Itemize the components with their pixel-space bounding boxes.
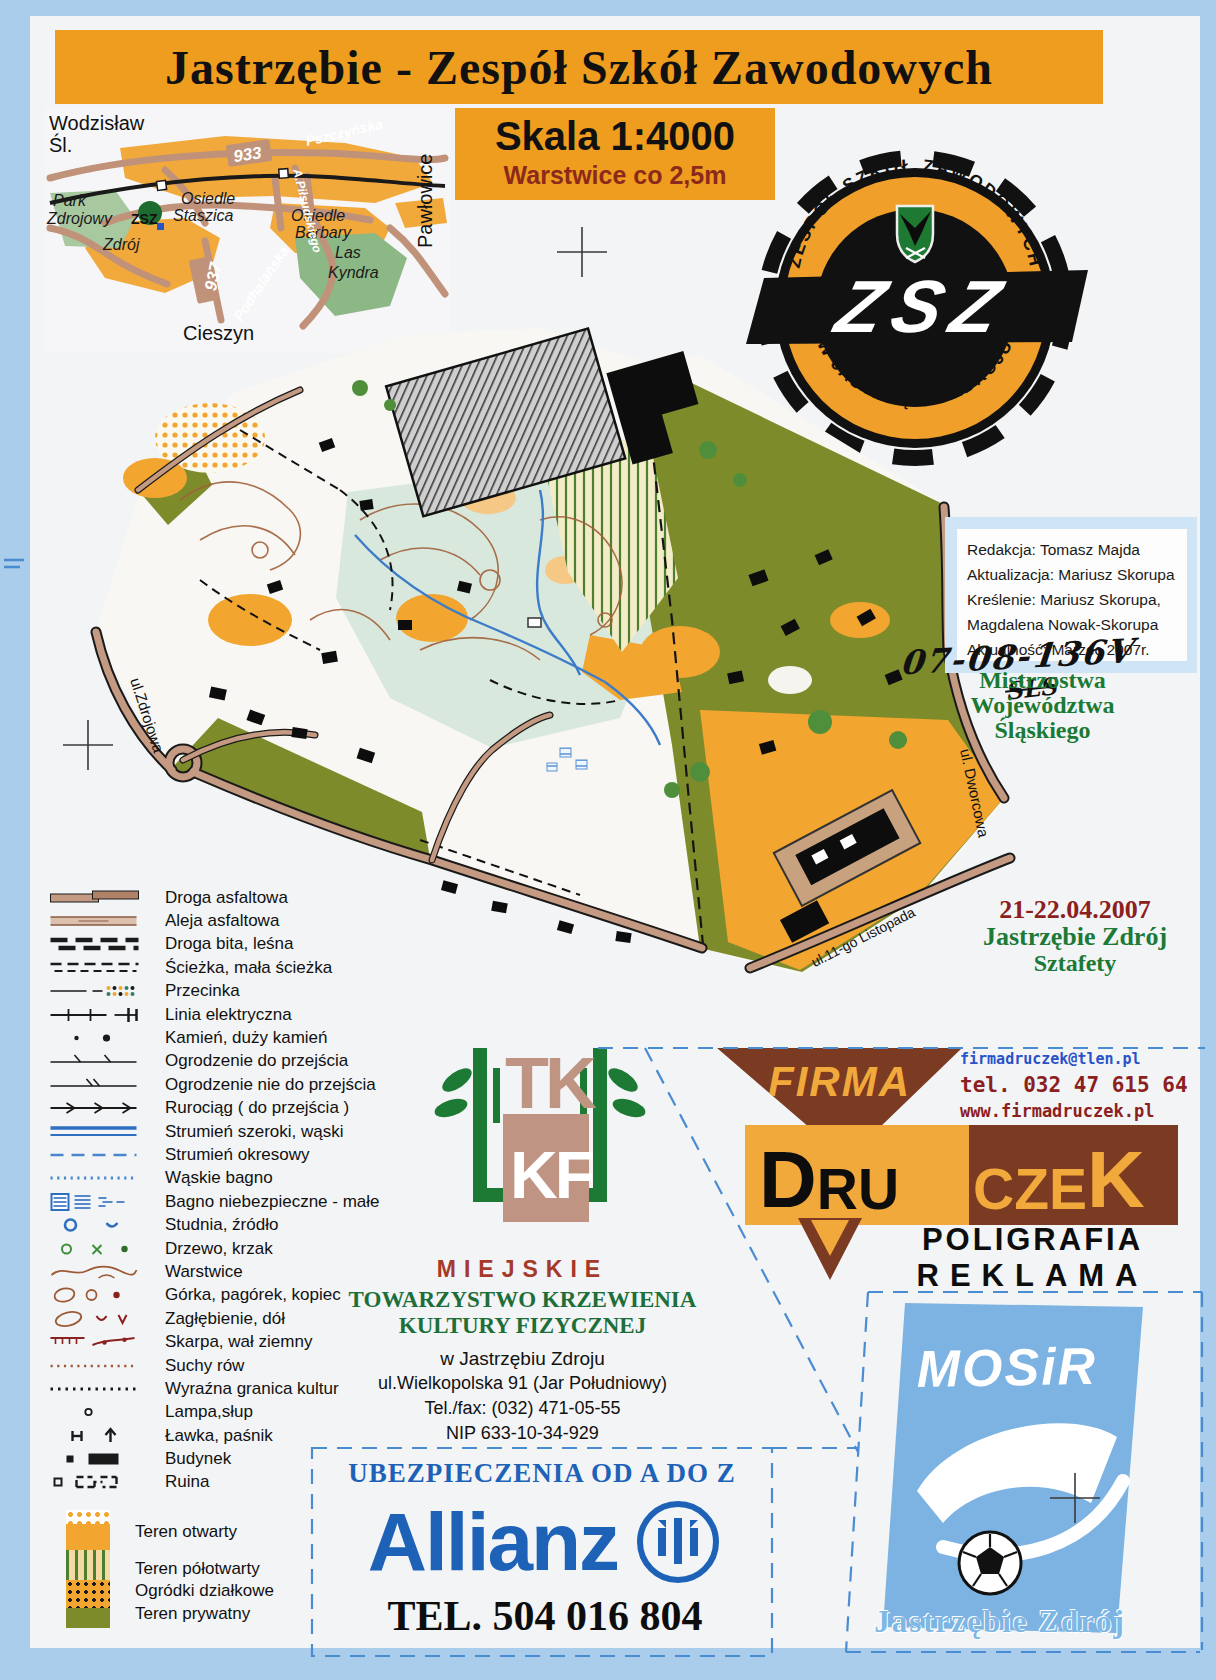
ogrodzenie-do-icon — [46, 1051, 151, 1071]
locator-label-zsz: ZSZ — [131, 211, 158, 227]
mosir-name: MOSiR — [916, 1337, 1097, 1398]
przecinka-icon — [46, 981, 151, 1001]
page-title: Jastrzębie - Zespół Szkół Zawodowych — [165, 40, 993, 95]
allianz-phone: TEL. 504 016 804 — [330, 1592, 760, 1640]
locator-label-barbary-2: Barbary — [295, 224, 352, 241]
locator-label-933: 933 — [232, 143, 263, 166]
legend-item-strumien: Strumień szeroki, wąski — [46, 1120, 396, 1143]
legend-item-kamien: Kamień, duży kamień — [46, 1026, 396, 1049]
legend-label: Linia elektryczna — [165, 1005, 292, 1025]
legend-item-sciezka: Ścieżka, mała ścieżka — [46, 956, 396, 979]
locator-label-zdroj: Zdrój — [102, 236, 140, 253]
scale-box: Skala 1:4000 Warstwice co 2,5m — [455, 108, 775, 200]
suchy-row-icon — [46, 1356, 151, 1376]
legend-label: Warstwice — [165, 1262, 243, 1282]
granica-kultur-icon — [46, 1379, 151, 1399]
legend-label: Wąskie bagno — [165, 1168, 273, 1188]
linia-elektryczna-icon — [46, 1005, 151, 1025]
legend-item-droga-bita: Droga bita, leśna — [46, 933, 396, 956]
legend-item-waskie-bagno: Wąskie bagno — [46, 1167, 396, 1190]
druczek-d: D — [759, 1143, 817, 1217]
sciezka-icon — [46, 958, 151, 978]
map-clearing — [768, 666, 812, 694]
aleja-asfaltowa-icon — [46, 911, 151, 931]
swatch-halfopen — [66, 1550, 110, 1580]
druczek-website: www.firmadruczek.pl — [960, 1101, 1210, 1121]
locator-map: 933 937 Wodzisław Śl. Cieszyn Park Zdroj… — [45, 108, 450, 353]
tkkf-street: ul.Wielkopolska 91 (Jar Południowy) — [330, 1372, 715, 1395]
legend-label: Strumień okresowy — [165, 1145, 310, 1165]
druczek-triangle-inner-icon — [811, 1220, 849, 1256]
locator-label-las-2: Kyndra — [328, 264, 379, 281]
legend-label: Droga asfaltowa — [165, 888, 288, 908]
allianz-logo-icon — [634, 1498, 722, 1586]
legend-item-przecinka: Przecinka — [46, 980, 396, 1003]
legend-item-ogrodzenie-nie: Ogrodzenie nie do przejścia — [46, 1073, 396, 1096]
strumien-icon — [46, 1122, 151, 1142]
zaglebienie-icon — [46, 1309, 151, 1329]
budynek-icon — [46, 1449, 151, 1469]
legend-area-swatches — [66, 1510, 110, 1628]
druczek-ru: RU — [817, 1161, 899, 1217]
legend-item-ogrodzenie-do: Ogrodzenie do przejścia — [46, 1050, 396, 1073]
legend-label: Wyraźna granica kultur — [165, 1379, 339, 1399]
championship-title: Mistrzostwa Województwa Śląskiego — [935, 668, 1150, 743]
scanned-map-poster: Jastrzębie - Zespół Szkół Zawodowych — [0, 0, 1216, 1680]
event-place: Jastrzębie Zdrój — [950, 923, 1200, 950]
legend-label: Górka, pagórek, kopiec — [165, 1285, 341, 1305]
tkkf-tk: TK — [505, 1043, 597, 1123]
legend-item-aleja-asfaltowa: Aleja asfaltowa — [46, 909, 396, 932]
swatch-private — [66, 1608, 110, 1628]
locator-zsz-marker — [157, 223, 164, 230]
legend-label: Ogrodzenie nie do przejścia — [165, 1075, 376, 1095]
map-building-open — [528, 618, 541, 627]
ruina-icon — [46, 1472, 151, 1492]
druczek-wordmark-right: CZEK — [969, 1125, 1178, 1225]
credits-line: Redakcja: Tomasz Majda — [967, 537, 1181, 562]
locator-label-staszica-1: Osiedle — [181, 190, 235, 207]
legend-label: Drzewo, krzak — [165, 1239, 273, 1259]
locator-label-pawlowice: Pawłowice — [414, 103, 437, 248]
allianz-brand-row: Allianz — [320, 1498, 770, 1586]
druczek-k: K — [1087, 1143, 1145, 1217]
druczek-wordmark-left: DRU — [745, 1125, 969, 1225]
drzewo-icon — [46, 1239, 151, 1259]
locator-label-park-1: Park — [53, 192, 87, 209]
tkkf-kf: KF — [510, 1138, 593, 1212]
locator-label-park-2: Zdrojowy — [46, 210, 113, 227]
kamien-icon — [46, 1028, 151, 1048]
tkkf-city: w Jastrzębiu Zdroju — [330, 1347, 715, 1370]
legend-label: Ścieżka, mała ścieżka — [165, 958, 332, 978]
legend-label: Skarpa, wał ziemny — [165, 1332, 312, 1352]
legend-label: Ogrodzenie do przejścia — [165, 1051, 348, 1071]
tkkf-text-block: MIEJSKIE TOWARZYSTWO KRZEWIENIA KULTURY … — [330, 1256, 715, 1445]
lawka-icon — [46, 1426, 151, 1446]
legend-item-rurociag: Rurociąg ( do przejścia ) — [46, 1097, 396, 1120]
legend-item-strumien-okresowy: Strumień okresowy — [46, 1143, 396, 1166]
legend-area-private: Teren prywatny — [135, 1604, 250, 1624]
bagno-niebezpieczne-icon — [46, 1192, 151, 1212]
legend-label: Studnia, źródło — [165, 1215, 278, 1235]
skarpa-icon — [46, 1332, 151, 1352]
legend-label: Aleja asfaltowa — [165, 911, 279, 931]
mosir-logo: MOSiR — [865, 1295, 1205, 1655]
map-open-patch-7 — [640, 626, 720, 678]
waskie-bagno-icon — [46, 1168, 151, 1188]
soccer-ball-icon — [959, 1532, 1021, 1594]
locator-label-wodzislaw-2: Śl. — [49, 133, 72, 156]
tkkf-name-line2: TOWARZYSTWO KRZEWIENIA — [330, 1287, 715, 1313]
warstwice-icon — [46, 1262, 151, 1282]
druczek-wordmark: DRU CZEK — [745, 1125, 1178, 1225]
championship-line2: Województwa — [935, 693, 1150, 718]
druczek-contact: firmadruczek@tlen.pl tel. 032 47 615 64 … — [960, 1050, 1210, 1121]
legend-label: Ruina — [165, 1472, 209, 1492]
legend-label: Lampa,słup — [165, 1402, 253, 1422]
swatch-open-dotted — [66, 1510, 110, 1524]
lampa-icon — [46, 1402, 151, 1422]
legend-label: Bagno niebezpieczne - małe — [165, 1192, 380, 1212]
druczek-line2: REKLAMA — [860, 1258, 1205, 1294]
scan-artifact-icon — [4, 560, 24, 567]
allianz-wordmark: Allianz — [368, 1499, 618, 1585]
tkkf-name-line3: KULTURY FIZYCZNEJ — [330, 1313, 715, 1339]
studnia-icon — [46, 1215, 151, 1235]
map-open-patch-2 — [208, 594, 292, 646]
tkkf-logo: TK KF — [415, 1008, 665, 1238]
druczek-email: firmadruczek@tlen.pl — [960, 1050, 1210, 1068]
swatch-open — [66, 1524, 110, 1550]
strumien-okresowy-icon — [46, 1145, 151, 1165]
legend-label: Przecinka — [165, 981, 240, 1001]
credits-line: Aktualizacja: Mariusz Skorupa — [967, 562, 1181, 587]
legend-area-allotments: Ogródki działkowe — [135, 1581, 274, 1601]
championship-line3: Śląskiego — [935, 718, 1150, 743]
legend-label: Ławka, paśnik — [165, 1426, 273, 1446]
droga-asfaltowa-icon — [46, 888, 151, 908]
droga-bita-icon — [46, 934, 151, 954]
championship-line1: Mistrzostwa — [935, 668, 1150, 693]
event-info: 21-22.04.2007 Jastrzębie Zdrój Sztafety — [950, 896, 1200, 977]
legend-label: Droga bita, leśna — [165, 934, 294, 954]
legend-item-droga-asfaltowa: Droga asfaltowa — [46, 886, 396, 909]
legend-label: Strumień szeroki, wąski — [165, 1122, 344, 1142]
contour-interval: Warstwice co 2,5m — [455, 161, 775, 190]
title-banner: Jastrzębie - Zespół Szkół Zawodowych — [55, 30, 1103, 104]
gorka-icon — [46, 1285, 151, 1305]
ogrodzenie-nie-icon — [46, 1075, 151, 1095]
legend-area-open: Teren otwarty — [135, 1522, 237, 1542]
legend-label: Suchy rów — [165, 1356, 244, 1376]
rurociag-icon — [46, 1098, 151, 1118]
event-kind: Sztafety — [950, 950, 1200, 977]
legend-item-studnia: Studnia, źródło — [46, 1213, 396, 1236]
swatch-allotments — [66, 1580, 110, 1608]
tkkf-tel: Tel./fax: (032) 471-05-55 — [330, 1397, 715, 1420]
locator-label-las-1: Las — [335, 244, 361, 261]
legend-area-halfopen: Teren półotwarty — [135, 1559, 260, 1579]
druczek-cze: CZE — [973, 1161, 1087, 1217]
tkkf-nip: NIP 633-10-34-929 — [330, 1422, 715, 1445]
event-date: 21-22.04.2007 — [950, 896, 1200, 923]
legend-label: Budynek — [165, 1449, 231, 1469]
mosir-city: Jastrzębie Zdrój — [805, 1604, 1195, 1640]
legend-item-bagno-niebezpieczne: Bagno niebezpieczne - małe — [46, 1190, 396, 1213]
locator-label-staszica-2: Staszica — [173, 207, 234, 224]
scale-value: Skala 1:4000 — [455, 114, 775, 159]
druczek-phone: tel. 032 47 615 64 — [960, 1073, 1210, 1097]
credits-line: Kreślenie: Mariusz Skorupa, — [967, 587, 1181, 612]
map-open-patch-3 — [396, 594, 468, 642]
druczek-line1: POLIGRAFIA — [860, 1222, 1205, 1258]
locator-label-wodzislaw-1: Wodzisław — [49, 112, 145, 134]
tkkf-miejskie: MIEJSKIE — [330, 1256, 715, 1283]
legend-label: Rurociąg ( do przejścia ) — [165, 1098, 349, 1118]
firma-label: FIRMA — [768, 1058, 911, 1106]
legend-label: Zagłębienie, dół — [165, 1309, 285, 1329]
allianz-tagline: UBEZPIECZENIA OD A DO Z — [312, 1458, 772, 1489]
legend-label: Kamień, duży kamień — [165, 1028, 328, 1048]
legend-item-linia-elektryczna: Linia elektryczna — [46, 1003, 396, 1026]
